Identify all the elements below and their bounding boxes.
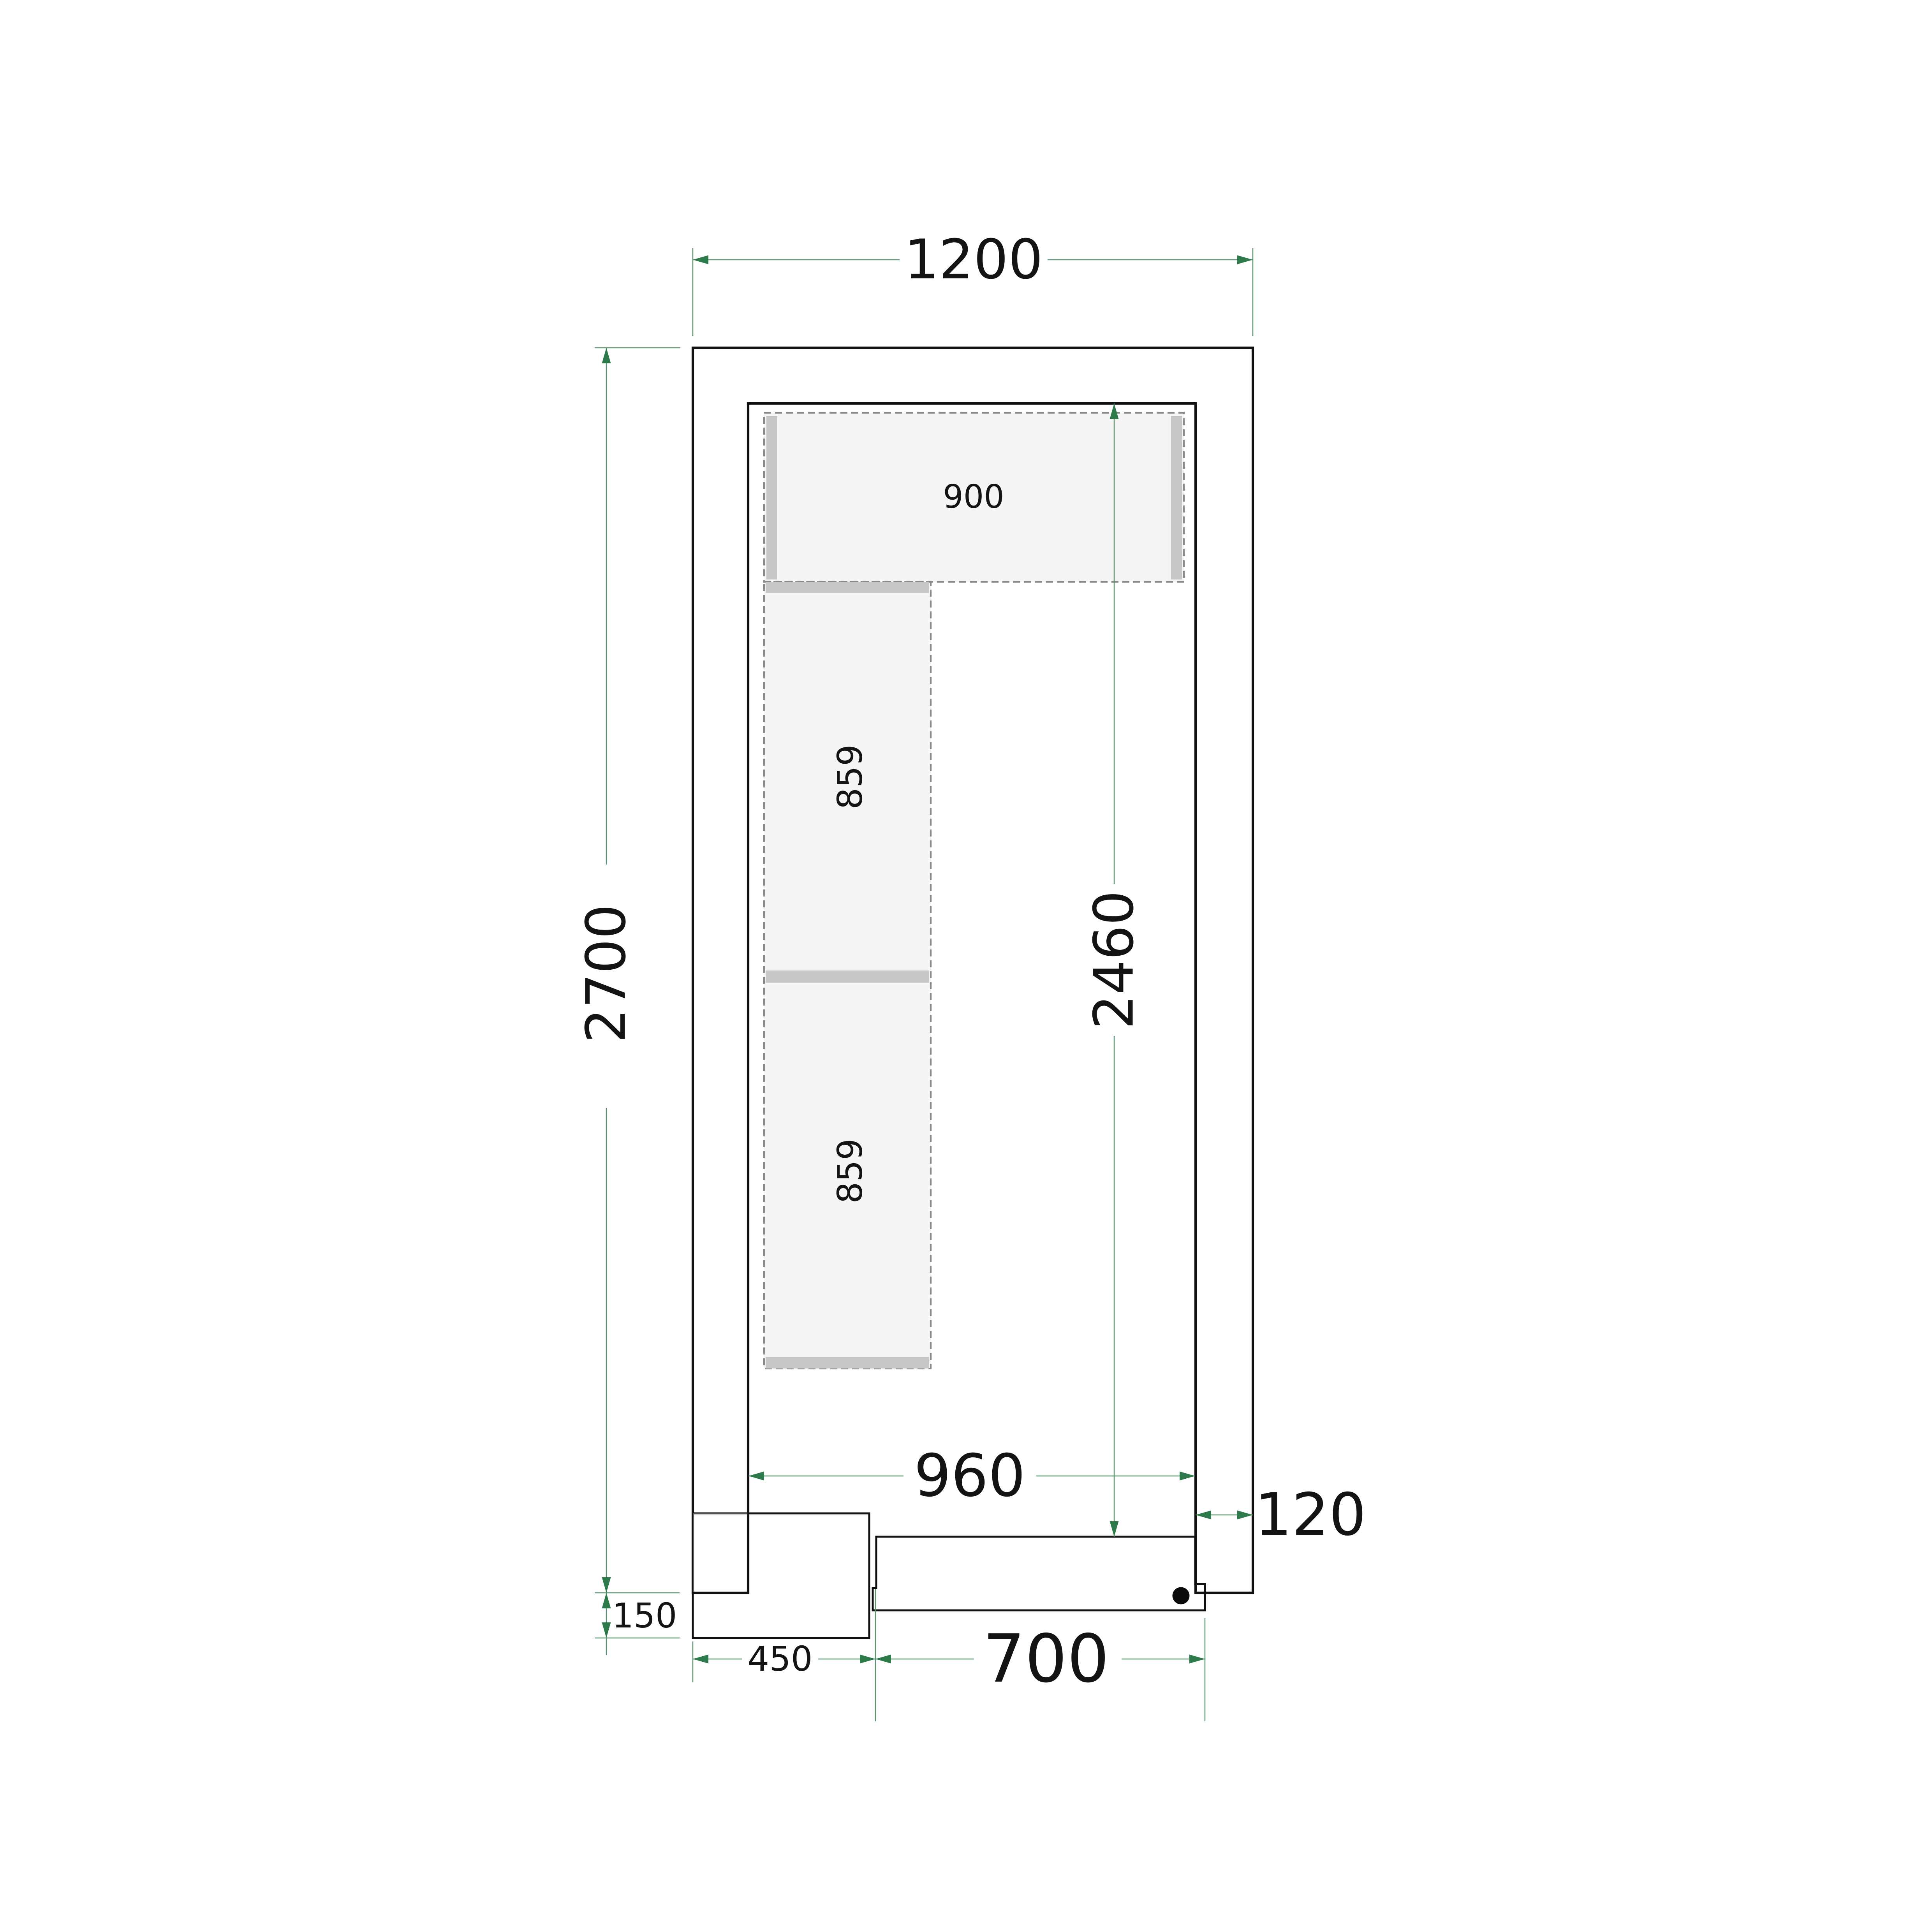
left-shelf-divider-support <box>766 970 929 983</box>
top-shelf-left-support <box>766 416 777 579</box>
arrowhead-left-icon <box>693 255 708 264</box>
left-shelf-top-support <box>766 582 929 593</box>
arrowhead-up-icon <box>1110 403 1119 419</box>
left-shelf-lower-label: 859 <box>830 1138 870 1203</box>
arrowhead-right-icon <box>1180 1472 1195 1481</box>
dim-door-width: 700 <box>875 1618 1205 1721</box>
dim-inner-width-label: 960 <box>914 1442 1025 1510</box>
arrowhead-down-icon <box>602 1622 611 1638</box>
dim-unit-width: 450 <box>693 1589 875 1721</box>
arrowhead-right-icon <box>860 1655 875 1664</box>
arrowhead-up-icon <box>602 348 611 363</box>
dim-inner-width: 960 <box>748 1442 1195 1510</box>
arrowhead-left-icon <box>693 1655 708 1664</box>
cold-room-floor-plan: 900 859 859 1200 2700 2460 960 120 <box>0 0 1932 1932</box>
dim-outer-depth: 2700 <box>575 348 681 1593</box>
cooling-unit-wall-overlap-veil <box>693 1513 748 1593</box>
arrowhead-down-icon <box>602 1577 611 1593</box>
dim-unit-overhang-label: 150 <box>612 1596 677 1636</box>
arrowhead-right-icon <box>1237 1511 1253 1520</box>
arrowhead-left-icon <box>748 1472 764 1481</box>
dim-inner-depth-label: 2460 <box>1083 891 1146 1029</box>
arrowhead-up-icon <box>602 1593 611 1608</box>
dim-outer-depth-label: 2700 <box>575 904 638 1043</box>
left-shelf-upper-label: 859 <box>830 744 870 809</box>
dim-outer-width: 1200 <box>693 228 1253 336</box>
arrowhead-right-icon <box>1189 1655 1205 1664</box>
arrowhead-left-icon <box>875 1655 891 1664</box>
door-leaf <box>873 1537 1205 1610</box>
arrowhead-left-icon <box>1196 1511 1211 1520</box>
dim-outer-width-label: 1200 <box>904 228 1043 292</box>
left-shelf-bottom-support <box>766 1357 929 1368</box>
dim-wall-thickness-label: 120 <box>1255 1481 1366 1549</box>
top-shelf-label: 900 <box>943 478 1004 516</box>
dim-unit-overhang: 150 <box>595 1593 680 1655</box>
top-shelf-right-support <box>1171 416 1182 579</box>
dim-unit-width-label: 450 <box>747 1639 812 1679</box>
arrowhead-down-icon <box>1110 1521 1119 1537</box>
door-handle-dot <box>1172 1587 1189 1604</box>
dim-wall-thickness: 120 <box>1196 1481 1366 1549</box>
dim-door-width-label: 700 <box>983 1620 1109 1698</box>
arrowhead-right-icon <box>1237 255 1253 264</box>
